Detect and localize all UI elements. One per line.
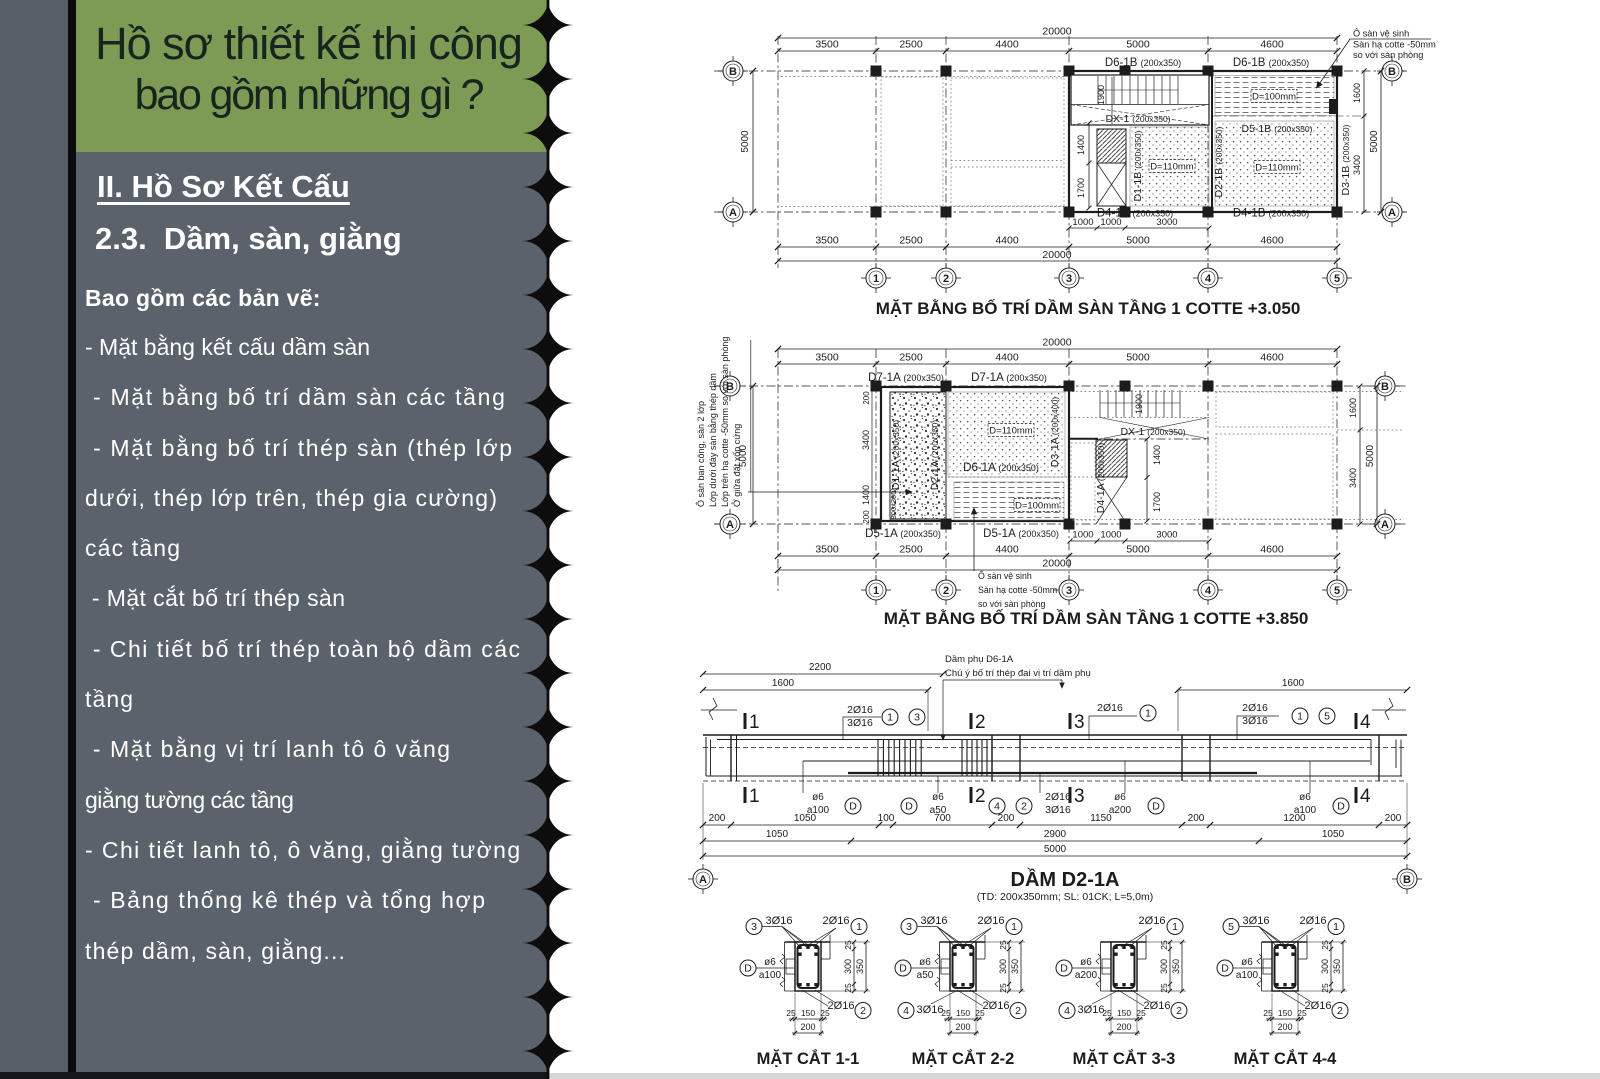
svg-text:4400: 4400 xyxy=(995,39,1019,51)
svg-text:200: 200 xyxy=(998,813,1015,824)
svg-text:25: 25 xyxy=(998,983,1008,993)
svg-text:1: 1 xyxy=(856,921,862,933)
svg-text:25: 25 xyxy=(843,983,853,993)
svg-text:D: D xyxy=(1337,801,1345,813)
svg-text:1: 1 xyxy=(749,786,760,807)
svg-text:D4-1B (200x350): D4-1B (200x350) xyxy=(1233,208,1309,220)
svg-text:2: 2 xyxy=(860,1005,866,1017)
svg-text:D5-1B (200x350): D5-1B (200x350) xyxy=(1242,123,1313,135)
svg-text:D=100mm: D=100mm xyxy=(1252,92,1296,103)
svg-text:350: 350 xyxy=(1010,959,1020,974)
svg-text:A: A xyxy=(729,207,737,219)
svg-text:ø6: ø6 xyxy=(919,957,931,968)
svg-text:2: 2 xyxy=(1337,1005,1343,1017)
svg-text:2Ø16: 2Ø16 xyxy=(828,1000,855,1012)
svg-text:2Ø16: 2Ø16 xyxy=(1305,1000,1332,1012)
svg-text:150: 150 xyxy=(801,1008,815,1018)
svg-text:1150: 1150 xyxy=(1090,813,1112,824)
svg-text:20000: 20000 xyxy=(1042,249,1071,261)
svg-text:300: 300 xyxy=(1159,959,1169,974)
svg-text:25: 25 xyxy=(1297,1008,1307,1018)
svg-text:1600: 1600 xyxy=(1352,83,1362,103)
svg-text:200: 200 xyxy=(1385,813,1402,824)
svg-text:200: 200 xyxy=(862,510,871,524)
svg-text:20000: 20000 xyxy=(1042,26,1071,38)
svg-text:D=100mm: D=100mm xyxy=(1015,501,1059,512)
svg-text:3Ø16: 3Ø16 xyxy=(917,1004,944,1016)
svg-text:5000: 5000 xyxy=(1126,352,1150,364)
svg-text:(TD: 200x350mm; SL: 01CK; L=5,: (TD: 200x350mm; SL: 01CK; L=5,0m) xyxy=(977,891,1154,903)
svg-text:150: 150 xyxy=(1278,1008,1292,1018)
svg-text:5000: 5000 xyxy=(1126,39,1150,51)
svg-text:2: 2 xyxy=(1176,1005,1182,1017)
svg-text:1600: 1600 xyxy=(772,678,795,689)
svg-text:Chú ý bố trí thép đai vị trí d: Chú ý bố trí thép đai vị trí dầm phụ xyxy=(945,668,1091,679)
svg-text:5000: 5000 xyxy=(1365,444,1376,467)
svg-text:D2-1B (200x350): D2-1B (200x350) xyxy=(1213,126,1225,197)
svg-text:1700: 1700 xyxy=(1076,178,1086,198)
svg-text:DẦM D2-1A: DẦM D2-1A xyxy=(1011,868,1120,891)
svg-text:Ô sàn ban công, sàn 2 lớp: Ô sàn ban công, sàn 2 lớp xyxy=(696,401,706,507)
svg-text:4: 4 xyxy=(1205,273,1212,285)
svg-text:D3-1A (200x400): D3-1A (200x400) xyxy=(1049,397,1061,468)
svg-text:2900: 2900 xyxy=(1044,829,1067,840)
svg-text:350: 350 xyxy=(1171,959,1181,974)
svg-text:1: 1 xyxy=(887,712,893,724)
svg-text:2Ø16: 2Ø16 xyxy=(1242,702,1268,714)
svg-text:350: 350 xyxy=(855,959,865,974)
svg-text:a100: a100 xyxy=(1236,970,1259,981)
svg-text:25: 25 xyxy=(998,940,1008,950)
svg-text:ø6: ø6 xyxy=(1114,792,1126,803)
svg-text:2: 2 xyxy=(943,273,949,285)
svg-text:4400: 4400 xyxy=(995,544,1019,556)
svg-text:200: 200 xyxy=(1116,1022,1131,1032)
svg-text:Ở giữa đặt xốp cứng: Ở giữa đặt xốp cứng xyxy=(731,424,742,507)
svg-text:ø6: ø6 xyxy=(1241,957,1253,968)
svg-text:D6-1B (200x350): D6-1B (200x350) xyxy=(1105,57,1181,69)
svg-text:25: 25 xyxy=(820,1008,830,1018)
svg-text:1050: 1050 xyxy=(766,829,789,840)
svg-text:1200: 1200 xyxy=(1283,813,1306,824)
svg-text:MẶT CẮT 4-4: MẶT CẮT 4-4 xyxy=(1234,1049,1337,1068)
svg-text:5000: 5000 xyxy=(1126,544,1150,556)
svg-text:200: 200 xyxy=(800,1022,815,1032)
svg-text:1400: 1400 xyxy=(1152,445,1162,465)
svg-text:D6-1B (200x350): D6-1B (200x350) xyxy=(1233,57,1309,69)
svg-text:D3-1B (200x350): D3-1B (200x350) xyxy=(1340,124,1352,195)
svg-text:a200: a200 xyxy=(1075,970,1098,981)
svg-text:D2-1A (200x350): D2-1A (200x350) xyxy=(929,420,941,491)
svg-text:1: 1 xyxy=(873,585,879,597)
svg-text:4600: 4600 xyxy=(1260,39,1284,51)
svg-text:3400: 3400 xyxy=(861,430,871,450)
svg-text:3Ø16: 3Ø16 xyxy=(921,915,948,927)
svg-text:5000: 5000 xyxy=(1044,844,1067,855)
svg-text:700: 700 xyxy=(934,813,951,824)
svg-text:2Ø16: 2Ø16 xyxy=(1144,1000,1171,1012)
svg-text:3: 3 xyxy=(1066,273,1072,285)
svg-text:2500: 2500 xyxy=(899,352,923,364)
svg-text:D=110mm: D=110mm xyxy=(1150,162,1193,173)
svg-text:Dầm phụ D6-1A: Dầm phụ D6-1A xyxy=(945,654,1014,665)
svg-text:1900: 1900 xyxy=(1096,85,1106,105)
svg-text:4: 4 xyxy=(994,801,1000,813)
svg-text:25: 25 xyxy=(1159,940,1169,950)
svg-text:1050: 1050 xyxy=(794,813,817,824)
svg-text:3Ø16: 3Ø16 xyxy=(1078,1004,1105,1016)
svg-text:5: 5 xyxy=(1228,921,1234,933)
svg-text:4: 4 xyxy=(1360,712,1371,733)
svg-text:D: D xyxy=(849,801,857,813)
svg-text:D5-1A (200x350): D5-1A (200x350) xyxy=(865,528,941,540)
svg-text:MẶT CẮT 1-1: MẶT CẮT 1-1 xyxy=(757,1049,860,1068)
svg-text:Ô sàn vệ sinh: Ô sàn vệ sinh xyxy=(978,571,1032,581)
svg-text:25: 25 xyxy=(1320,940,1330,950)
svg-text:3Ø16: 3Ø16 xyxy=(1243,915,1270,927)
svg-text:D=110mm: D=110mm xyxy=(1255,163,1298,174)
svg-text:3000: 3000 xyxy=(1156,530,1177,541)
svg-text:2Ø16: 2Ø16 xyxy=(1097,702,1123,714)
svg-text:25: 25 xyxy=(1159,983,1169,993)
svg-text:1600: 1600 xyxy=(1348,398,1358,418)
svg-text:ø6: ø6 xyxy=(932,792,944,803)
svg-text:A: A xyxy=(699,874,707,886)
svg-text:3500: 3500 xyxy=(815,544,839,556)
svg-text:D: D xyxy=(905,801,913,813)
svg-text:2Ø16: 2Ø16 xyxy=(1139,915,1166,927)
svg-text:DX-1 (200x350): DX-1 (200x350) xyxy=(1120,426,1185,438)
svg-text:Ô sàn vệ sinh: Ô sàn vệ sinh xyxy=(1353,29,1409,39)
svg-text:D6-1A (200x350): D6-1A (200x350) xyxy=(963,462,1039,474)
svg-text:1700: 1700 xyxy=(1152,492,1162,512)
svg-text:4: 4 xyxy=(1360,786,1371,807)
svg-text:D=110mm: D=110mm xyxy=(989,426,1032,437)
svg-text:1: 1 xyxy=(1333,921,1339,933)
svg-text:4600: 4600 xyxy=(1260,544,1284,556)
svg-text:3Ø16: 3Ø16 xyxy=(847,717,873,729)
svg-text:5: 5 xyxy=(1334,273,1340,285)
svg-text:1000: 1000 xyxy=(1072,530,1093,541)
svg-text:a200: a200 xyxy=(1109,805,1132,816)
svg-text:4: 4 xyxy=(1205,585,1212,597)
svg-text:D5-1A (200x350): D5-1A (200x350) xyxy=(983,528,1059,540)
svg-text:200: 200 xyxy=(1277,1022,1292,1032)
svg-text:25: 25 xyxy=(1136,1008,1146,1018)
svg-text:1400: 1400 xyxy=(1076,135,1086,155)
svg-text:1000: 1000 xyxy=(1100,530,1121,541)
svg-text:A: A xyxy=(1388,207,1396,219)
svg-text:25: 25 xyxy=(1102,1008,1112,1018)
svg-text:1: 1 xyxy=(1011,921,1017,933)
svg-text:3Ø16: 3Ø16 xyxy=(766,915,793,927)
svg-text:A: A xyxy=(726,519,734,531)
svg-text:200: 200 xyxy=(955,1022,970,1032)
svg-text:25: 25 xyxy=(786,1008,796,1018)
svg-text:MẶT BẰNG BỐ TRÍ DẦM SÀN TẦNG 1: MẶT BẰNG BỐ TRÍ DẦM SÀN TẦNG 1 COTTE +3.… xyxy=(884,608,1309,628)
svg-text:ø6: ø6 xyxy=(812,792,824,803)
svg-text:D: D xyxy=(899,963,907,975)
svg-text:25: 25 xyxy=(1320,983,1330,993)
svg-text:300: 300 xyxy=(843,959,853,974)
svg-text:2500: 2500 xyxy=(899,39,923,51)
svg-text:300: 300 xyxy=(998,959,1008,974)
svg-text:200: 200 xyxy=(709,813,726,824)
svg-text:D: D xyxy=(1152,801,1160,813)
svg-text:4400: 4400 xyxy=(995,352,1019,364)
svg-text:1: 1 xyxy=(1145,708,1151,720)
svg-text:2Ø16: 2Ø16 xyxy=(1300,915,1327,927)
svg-text:3: 3 xyxy=(751,921,757,933)
svg-text:25: 25 xyxy=(975,1008,985,1018)
svg-text:3Ø16: 3Ø16 xyxy=(1242,715,1268,727)
svg-text:3: 3 xyxy=(1066,585,1072,597)
svg-text:2200: 2200 xyxy=(809,662,832,673)
svg-text:150: 150 xyxy=(1117,1008,1131,1018)
svg-text:2: 2 xyxy=(975,712,986,733)
svg-text:1050: 1050 xyxy=(1322,829,1345,840)
svg-text:5: 5 xyxy=(1324,711,1330,723)
svg-text:2: 2 xyxy=(975,786,986,807)
svg-text:3400: 3400 xyxy=(1352,155,1362,175)
svg-text:Lớp dưới đáy sàn bằng thép dầm: Lớp dưới đáy sàn bằng thép dầm xyxy=(708,373,718,507)
svg-text:ø6: ø6 xyxy=(764,957,776,968)
svg-text:Sàn hạ cotte -50mm: Sàn hạ cotte -50mm xyxy=(978,585,1057,595)
svg-text:so với sàn phòng: so với sàn phòng xyxy=(1353,50,1423,60)
svg-text:3500: 3500 xyxy=(815,352,839,364)
svg-text:D7-1A (200x350): D7-1A (200x350) xyxy=(971,372,1047,384)
svg-text:4: 4 xyxy=(903,1005,909,1017)
svg-text:B: B xyxy=(729,66,737,78)
svg-text:3: 3 xyxy=(914,712,920,724)
svg-text:D7-1A (200x350): D7-1A (200x350) xyxy=(868,372,944,384)
svg-text:so với sàn phòng: so với sàn phòng xyxy=(978,599,1045,609)
svg-text:2Ø16: 2Ø16 xyxy=(983,1000,1010,1012)
svg-text:1: 1 xyxy=(1172,921,1178,933)
svg-text:4400: 4400 xyxy=(995,235,1019,247)
svg-text:B: B xyxy=(1381,381,1389,393)
svg-text:3: 3 xyxy=(1074,786,1085,807)
svg-text:3500: 3500 xyxy=(815,39,839,51)
svg-text:3: 3 xyxy=(906,921,912,933)
svg-text:2Ø16: 2Ø16 xyxy=(847,704,873,716)
svg-text:5: 5 xyxy=(1334,585,1340,597)
svg-text:25: 25 xyxy=(843,940,853,950)
svg-text:20000: 20000 xyxy=(1042,558,1071,570)
svg-text:D: D xyxy=(1221,963,1229,975)
svg-text:300: 300 xyxy=(1320,959,1330,974)
svg-text:1: 1 xyxy=(873,273,879,285)
svg-text:2500: 2500 xyxy=(899,544,923,556)
svg-text:2: 2 xyxy=(1015,1005,1021,1017)
svg-text:MẶT CẮT 3-3: MẶT CẮT 3-3 xyxy=(1073,1049,1176,1068)
svg-text:350: 350 xyxy=(1332,959,1342,974)
svg-text:2Ø16: 2Ø16 xyxy=(823,915,850,927)
svg-text:B: B xyxy=(1403,874,1411,886)
svg-text:1000: 1000 xyxy=(1100,217,1121,228)
svg-text:2: 2 xyxy=(943,585,949,597)
svg-text:20000: 20000 xyxy=(1042,337,1071,349)
svg-text:D1-1A (200x350): D1-1A (200x350) xyxy=(890,420,902,491)
svg-text:B: B xyxy=(1388,66,1396,78)
svg-text:(300x300): (300x300) xyxy=(889,488,898,522)
svg-text:DX-1 (200x350): DX-1 (200x350) xyxy=(1105,113,1170,125)
svg-text:D: D xyxy=(744,963,752,975)
svg-text:2Ø16: 2Ø16 xyxy=(978,915,1005,927)
svg-text:4600: 4600 xyxy=(1260,352,1284,364)
svg-text:150: 150 xyxy=(956,1008,970,1018)
svg-text:100: 100 xyxy=(878,813,895,824)
svg-text:2Ø16: 2Ø16 xyxy=(1045,791,1071,803)
svg-text:ø6: ø6 xyxy=(1080,957,1092,968)
svg-text:25: 25 xyxy=(941,1008,951,1018)
svg-text:1000: 1000 xyxy=(1072,217,1093,228)
svg-text:3500: 3500 xyxy=(815,235,839,247)
svg-text:MẶT CẮT 2-2: MẶT CẮT 2-2 xyxy=(912,1049,1015,1068)
svg-text:Sàn hạ cotte -50mm: Sàn hạ cotte -50mm xyxy=(1353,40,1436,50)
svg-text:2500: 2500 xyxy=(899,235,923,247)
svg-text:a50: a50 xyxy=(917,970,934,981)
svg-text:200: 200 xyxy=(1188,813,1205,824)
svg-text:5000: 5000 xyxy=(1369,130,1380,153)
svg-text:ø6: ø6 xyxy=(1299,792,1311,803)
svg-text:1: 1 xyxy=(749,712,760,733)
svg-text:1400: 1400 xyxy=(861,485,871,505)
svg-text:2: 2 xyxy=(1021,801,1027,813)
svg-text:5000: 5000 xyxy=(1126,235,1150,247)
svg-text:3Ø16: 3Ø16 xyxy=(1045,804,1071,816)
svg-text:5000: 5000 xyxy=(740,130,751,153)
svg-text:200: 200 xyxy=(862,391,871,405)
svg-text:4: 4 xyxy=(1064,1005,1070,1017)
svg-text:MẶT BẰNG BỐ TRÍ DẦM SÀN TẦNG 1: MẶT BẰNG BỐ TRÍ DẦM SÀN TẦNG 1 COTTE +3.… xyxy=(876,298,1301,318)
svg-text:1900: 1900 xyxy=(1134,394,1144,414)
svg-text:A: A xyxy=(1381,519,1389,531)
svg-text:3400: 3400 xyxy=(1348,468,1358,488)
svg-text:1: 1 xyxy=(1297,711,1303,723)
svg-text:a100: a100 xyxy=(759,970,782,981)
svg-text:4600: 4600 xyxy=(1260,235,1284,247)
svg-text:D: D xyxy=(1060,963,1068,975)
svg-text:3000: 3000 xyxy=(1156,217,1177,228)
svg-text:1600: 1600 xyxy=(1282,678,1305,689)
svg-text:Lớp trên hạ cotte -50mm so với: Lớp trên hạ cotte -50mm so với sàn phòng xyxy=(720,337,730,507)
svg-text:3: 3 xyxy=(1074,712,1085,733)
svg-text:25: 25 xyxy=(1263,1008,1273,1018)
